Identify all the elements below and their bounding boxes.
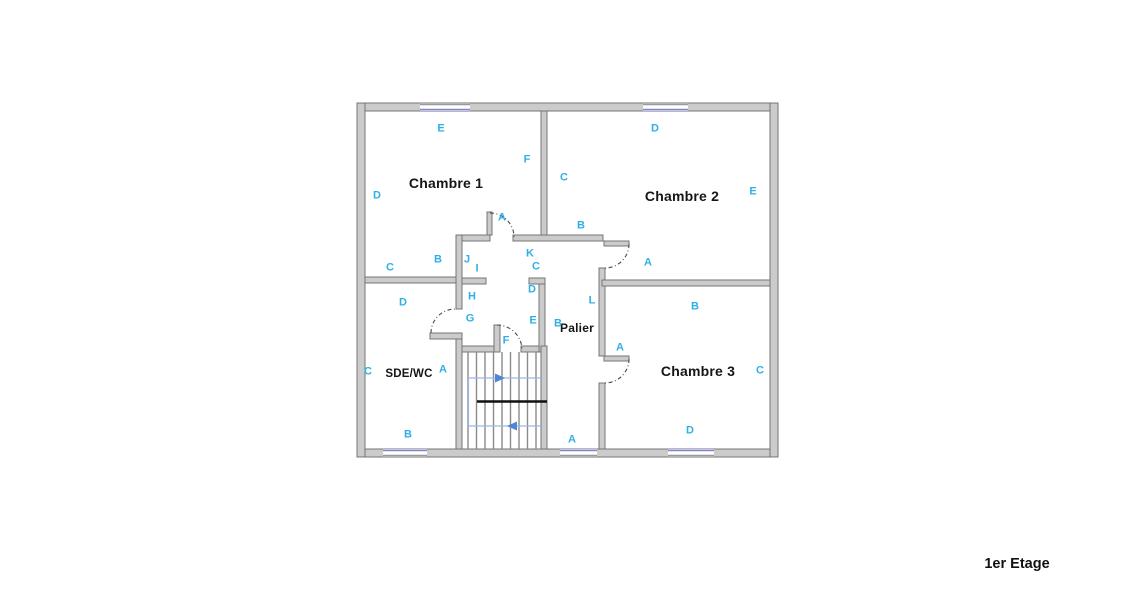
- wall-segment-label: G: [466, 314, 475, 325]
- wall-outer-left: [357, 103, 365, 457]
- door-leaf-stairs: [494, 325, 500, 352]
- window-chambre2: [643, 103, 688, 111]
- wall-segment-label: B: [691, 302, 699, 313]
- door-leaf-chambre2: [604, 241, 629, 246]
- room-label-chambre3: Chambre 3: [661, 363, 735, 379]
- wall-segment-label: A: [644, 258, 652, 269]
- door-arc-sdewc: [431, 309, 455, 333]
- door-leaf-sdewc: [430, 333, 462, 339]
- door-leaf-chambre3: [604, 356, 629, 361]
- wall-segment-label: D: [373, 191, 381, 202]
- wall-segment-label: C: [756, 366, 764, 377]
- staircase: [468, 352, 547, 449]
- wall-segment-label: A: [439, 365, 447, 376]
- wall-segment-label: F: [524, 155, 531, 166]
- wall-sdewc-top: [365, 277, 456, 283]
- wall-stub-i: [462, 278, 486, 284]
- wall-segment-label: E: [749, 187, 756, 198]
- floor-plan-page: Chambre 1 Chambre 2 Chambre 3 SDE/WC Pal…: [0, 0, 1142, 601]
- wall-segment-label: B: [404, 430, 412, 441]
- wall-segment-label: E: [529, 316, 536, 327]
- stair-up-arrow: [495, 374, 505, 383]
- wall-segment-label: F: [503, 336, 510, 347]
- room-label-sdewc: SDE/WC: [385, 368, 432, 380]
- wall-segment-label: B: [554, 319, 562, 330]
- wall-stair-right: [541, 346, 547, 449]
- wall-segment-label: C: [560, 173, 568, 184]
- wall-segment-label: A: [568, 435, 576, 446]
- wall-segment-label: D: [528, 285, 536, 296]
- room-label-chambre1: Chambre 1: [409, 175, 483, 191]
- wall-hall-top-right: [513, 235, 603, 241]
- wall-sdewc-right: [456, 333, 462, 449]
- wall-hall-left-j: [456, 235, 462, 309]
- wall-segment-label: A: [498, 213, 506, 224]
- wall-segment-label: I: [475, 264, 478, 275]
- room-label-palier: Palier: [560, 321, 594, 335]
- wall-segment-label: K: [526, 249, 534, 260]
- wall-segment-label: H: [468, 292, 476, 303]
- wall-segment-label: D: [399, 298, 407, 309]
- wall-hall-right-thin: [539, 284, 545, 352]
- wall-segment-label: D: [651, 124, 659, 135]
- window-palier: [560, 449, 597, 457]
- wall-segment-label: E: [437, 124, 444, 135]
- wall-chambre2-chambre3: [602, 280, 770, 286]
- room-label-chambre2: Chambre 2: [645, 188, 719, 204]
- wall-segment-label: C: [532, 262, 540, 273]
- window-sdewc: [383, 449, 427, 457]
- wall-stair-top-left: [462, 346, 495, 352]
- window-chambre3: [668, 449, 714, 457]
- wall-segment-label: A: [616, 343, 624, 354]
- wall-segment-label: D: [686, 426, 694, 437]
- stair-down-arrow: [507, 422, 517, 431]
- floor-title: 1er Etage: [984, 556, 1049, 572]
- wall-segment-label: J: [464, 255, 470, 266]
- door-arc-chambre3: [605, 359, 629, 383]
- wall-chambre1-chambre2: [541, 111, 547, 241]
- wall-palier-right-lower: [599, 383, 605, 449]
- wall-segment-label: C: [386, 263, 394, 274]
- wall-segment-label: B: [434, 255, 442, 266]
- wall-segment-label: C: [364, 367, 372, 378]
- window-chambre1: [420, 103, 470, 111]
- floor-plan-drawing: [0, 0, 1142, 601]
- wall-segment-label: L: [589, 296, 596, 307]
- wall-outer-right: [770, 103, 778, 457]
- walls-layer: [357, 103, 778, 457]
- wall-segment-label: B: [577, 221, 585, 232]
- door-leaf-chambre1: [487, 212, 492, 235]
- door-arc-chambre2: [605, 244, 629, 268]
